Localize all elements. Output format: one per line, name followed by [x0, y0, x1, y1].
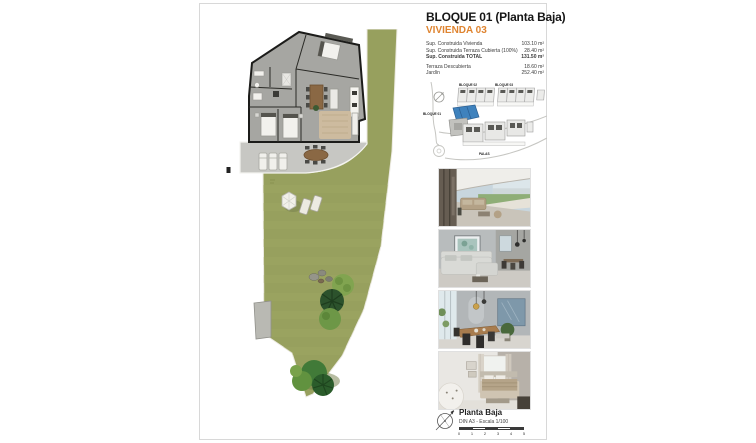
area-value: 103.10 m² [521, 41, 544, 48]
area-label: Terraza Descubierta [426, 64, 471, 71]
block2-units [457, 88, 494, 106]
table-row-total: Sup. Construida TOTAL 131.50 m² [426, 54, 544, 61]
photo-dining-room [438, 290, 531, 349]
compass-icon [434, 408, 456, 432]
scale-tick: 3 [497, 431, 499, 436]
area-value: 18.60 m² [524, 64, 544, 71]
sun-loungers [259, 153, 287, 170]
bottom-row-units [463, 120, 533, 146]
site-label-bloque-02: BLOQUE 02 [459, 83, 477, 87]
north-compass-icon [434, 92, 444, 102]
area-value: 28.40 m² [524, 48, 544, 55]
area-label: Sup. Construida Vivienda [426, 41, 482, 48]
scale-tick: 5 [523, 431, 525, 436]
plan-name: Planta Baja [459, 408, 502, 417]
floor-plan [226, 29, 401, 406]
photo-living-room [438, 229, 531, 288]
apartment-building [249, 32, 365, 142]
area-label: Jardín [426, 70, 440, 77]
scale-tick: 2 [484, 431, 486, 436]
terrace-pillar [227, 167, 231, 173]
site-label-bloque-01: BLOQUE 01 [423, 112, 441, 116]
plan-sheet: BLOQUE 01 (Planta Baja) VIVIENDA 03 Sup.… [199, 3, 547, 440]
roundabout [434, 146, 445, 157]
block3-units [497, 88, 544, 106]
garden-side-path [254, 301, 271, 339]
site-label-bloque-03: BLOQUE 03 [495, 83, 513, 87]
scale-note: DIN A3 - Escala 1/100 [459, 419, 508, 425]
site-plan: BLOQUE 02 BLOQUE 03 BLOQUE 01 PALAS [423, 82, 547, 170]
area-value: 252.40 m² [521, 70, 544, 77]
scale-tick: 4 [510, 431, 512, 436]
area-label: Sup. Construida Terraza Cubierta (100%) [426, 48, 518, 55]
table-row: Sup. Construida Vivienda 103.10 m² [426, 41, 544, 48]
scale-tick: 1 [471, 431, 473, 436]
table-row: Jardín 252.40 m² [426, 70, 544, 77]
scale-bar-segments [459, 427, 524, 430]
site-label-palas: PALAS [479, 152, 490, 156]
dwelling-subtitle: VIVIENDA 03 [426, 25, 487, 36]
photo-terrace [438, 168, 531, 227]
table-row: Sup. Construida Terraza Cubierta (100%) … [426, 48, 544, 55]
surface-areas-table: Sup. Construida Vivienda 103.10 m² Sup. … [426, 41, 544, 77]
table-row: Terraza Descubierta 18.60 m² [426, 64, 544, 71]
scale-tick: 0 [458, 431, 460, 436]
outdoor-dining-table [304, 145, 328, 165]
area-label: Sup. Construida TOTAL [426, 54, 482, 61]
area-value: 131.50 m² [521, 54, 544, 61]
scale-bar: 0 1 2 3 4 5 [459, 427, 524, 437]
photo-bedroom [438, 351, 531, 410]
page-title: BLOQUE 01 (Planta Baja) [426, 10, 565, 24]
